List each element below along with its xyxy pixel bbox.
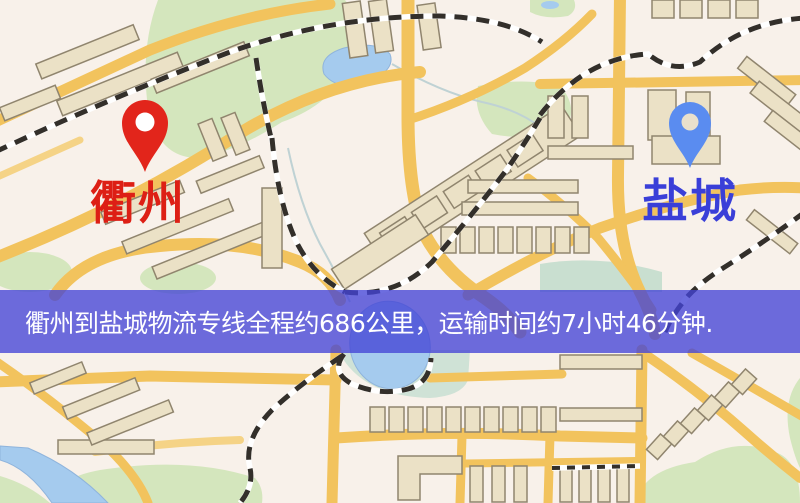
route-banner-text: 衢州到盐城物流专线全程约686公里，运输时间约7小时46分钟. [25, 304, 713, 340]
map-background [0, 0, 800, 503]
origin-label: 衢州 [90, 180, 186, 226]
logistics-route-map: 衢州 盐城 衢州到盐城物流专线全程约686公里，运输时间约7小时46分钟. [0, 0, 800, 503]
route-banner: 衢州到盐城物流专线全程约686公里，运输时间约7小时46分钟. [0, 290, 800, 353]
destination-label: 盐城 [642, 178, 738, 224]
origin-pin-shape [122, 100, 168, 172]
destination-pin-shape [669, 102, 711, 168]
origin-pin-hole [136, 113, 155, 132]
destination-pin-hole [682, 114, 699, 131]
destination-pin-icon[interactable] [665, 100, 715, 170]
origin-pin-icon[interactable] [118, 98, 172, 174]
